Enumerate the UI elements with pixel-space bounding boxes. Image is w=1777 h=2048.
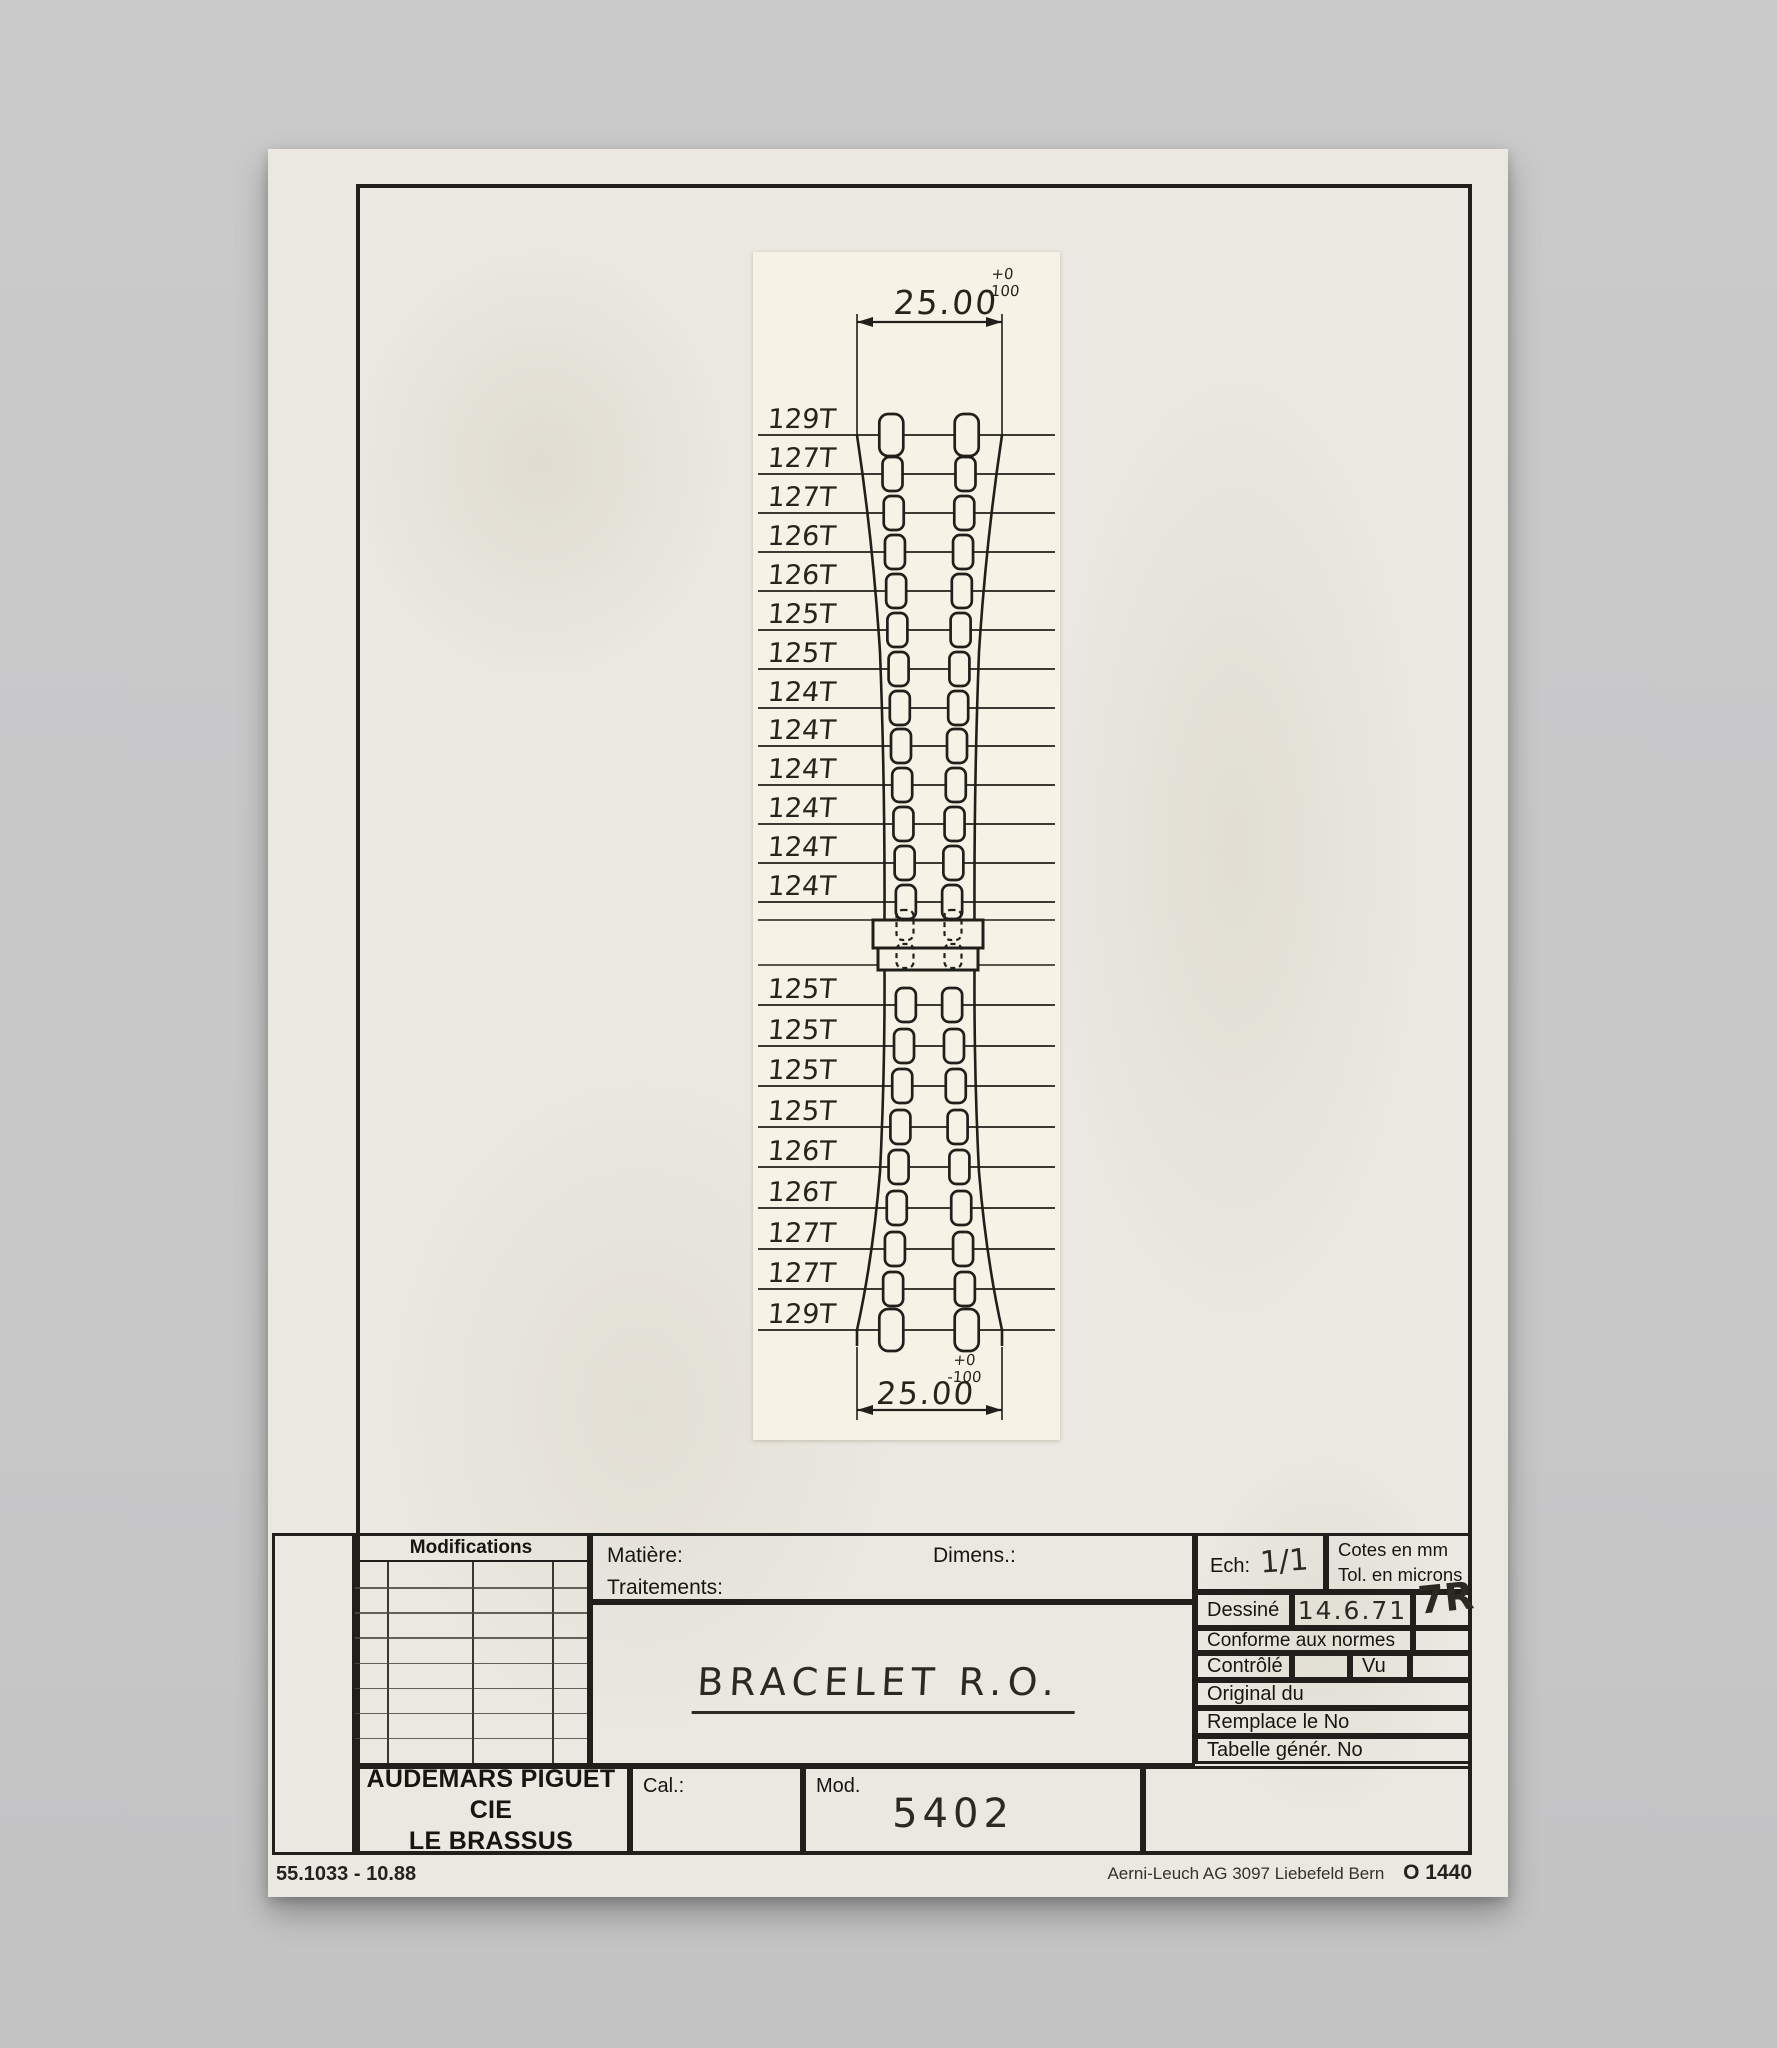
printer-code: O 1440: [1403, 1861, 1472, 1884]
ech-label: Ech:: [1210, 1555, 1250, 1578]
bracelet-link: [953, 535, 973, 569]
remplace-cell: Remplace le No: [1195, 1708, 1472, 1736]
conforme-blank-cell: [1413, 1628, 1472, 1653]
link-row-label: 125T: [766, 638, 837, 669]
link-row-label: 126T: [766, 521, 837, 552]
vu-blank-cell: [1410, 1653, 1472, 1680]
bracelet-link: [943, 846, 963, 880]
modifications-table: Modifications: [352, 1533, 590, 1766]
link-row-label: 124T: [766, 754, 837, 785]
link-row-label: 126T: [766, 1177, 837, 1208]
link-row-label: 124T: [766, 793, 837, 824]
link-row-label: 125T: [766, 974, 837, 1005]
printer-credit: Aerni-Leuch AG 3097 Liebefeld Bern O 144…: [1107, 1861, 1472, 1885]
bottom-tolerance-minus: -100: [947, 1368, 983, 1386]
bracelet-link: [884, 496, 904, 530]
link-row-label: 127T: [766, 1258, 837, 1289]
bracelet-link: [949, 1150, 969, 1184]
bracelet-link: [879, 414, 903, 456]
link-row-label: 125T: [766, 1015, 837, 1046]
bracelet-link: [883, 1272, 903, 1306]
modifications-header: Modifications: [355, 1536, 587, 1562]
link-row-label: 124T: [766, 871, 837, 902]
bracelet-link: [890, 1110, 910, 1144]
link-row-label: 127T: [766, 443, 837, 474]
top-tolerance-plus: +0: [991, 265, 1015, 283]
designation-cell: BRACELET R.O.: [590, 1602, 1195, 1766]
bracelet-link: [891, 729, 911, 763]
bracelet-link: [890, 691, 910, 725]
dessine-signature-cell: 7R: [1413, 1592, 1472, 1628]
bracelet-link: [951, 613, 971, 647]
scan-background: 25.00+0-100129T127T127T126T126T125T125T1…: [0, 0, 1777, 2048]
bracelet-link: [946, 768, 966, 802]
caliber-cell: Cal.:: [630, 1766, 803, 1855]
cotes-line1: Cotes en mm: [1338, 1538, 1469, 1562]
bracelet-link: [945, 807, 965, 841]
clasp-lower-plate: [878, 948, 978, 970]
dimension-arrow: [857, 317, 873, 327]
bracelet-link: [944, 1029, 964, 1063]
bracelet-drawing: 25.00+0-100129T127T127T126T126T125T125T1…: [753, 252, 1060, 1440]
bracelet-link: [948, 691, 968, 725]
top-tolerance-minus: -100: [985, 282, 1021, 300]
pasted-drawing-strip: 25.00+0-100129T127T127T126T126T125T125T1…: [753, 252, 1060, 1440]
modifications-grid-row-line: [355, 1663, 587, 1665]
drawing-sheet: 25.00+0-100129T127T127T126T126T125T125T1…: [268, 149, 1508, 1897]
link-row-label: 126T: [766, 560, 837, 591]
bracelet-link: [895, 846, 915, 880]
dessine-label: Dessiné: [1207, 1599, 1279, 1622]
original-label: Original du: [1207, 1683, 1304, 1706]
bracelet-outline-left: [857, 435, 885, 920]
bracelet-link: [889, 1150, 909, 1184]
link-row-label: 125T: [766, 1055, 837, 1086]
bottom-right-empty-cell: [1143, 1766, 1472, 1855]
modifications-grid-row-line: [355, 1612, 587, 1614]
modifications-grid-row-line: [355, 1637, 587, 1639]
dessine-date: 14.6.71: [1298, 1596, 1407, 1625]
printer-name: Aerni-Leuch AG 3097 Liebefeld Bern: [1107, 1864, 1384, 1883]
bracelet-link: [947, 729, 967, 763]
bracelet-link: [886, 574, 906, 608]
bracelet-outline-right: [974, 435, 1002, 920]
company-cell: AUDEMARS PIGUET CIE LE BRASSUS: [352, 1766, 630, 1855]
dimension-arrow: [986, 1405, 1002, 1415]
bracelet-link: [889, 652, 909, 686]
vu-cell: Vu: [1350, 1653, 1410, 1680]
link-row-label: 125T: [766, 599, 837, 630]
bottom-tolerance-plus: +0: [953, 1351, 977, 1369]
scale-cell: Ech: 1/1: [1195, 1533, 1326, 1592]
bracelet-link: [954, 496, 974, 530]
clasp-upper-plate: [873, 920, 983, 948]
original-du-cell: Original du: [1195, 1680, 1472, 1708]
cal-label: Cal.:: [643, 1775, 684, 1798]
dessine-cell: Dessiné: [1195, 1592, 1292, 1628]
bracelet-link: [948, 1110, 968, 1144]
bracelet-link: [951, 1191, 971, 1225]
link-row-label: 124T: [766, 832, 837, 863]
material-cell: Matière: Dimens.: Traitements:: [590, 1533, 1195, 1602]
controle-blank-cell: [1292, 1653, 1350, 1680]
form-reference: 55.1033 - 10.88: [276, 1863, 416, 1886]
bracelet-link: [942, 988, 962, 1022]
tabelle-label: Tabelle génér. No: [1207, 1739, 1363, 1762]
link-row-label: 124T: [766, 677, 837, 708]
ech-value: 1/1: [1259, 1542, 1310, 1580]
controle-cell: Contrôlé: [1195, 1653, 1292, 1680]
bracelet-link: [879, 1309, 903, 1351]
bracelet-link: [955, 414, 979, 456]
link-row-label: 127T: [766, 1218, 837, 1249]
bracelet-link: [887, 613, 907, 647]
remplace-label: Remplace le No: [1207, 1711, 1349, 1734]
bracelet-link: [885, 535, 905, 569]
conforme-cell: Conforme aux normes: [1195, 1628, 1413, 1653]
top-dimension-text: 25.00: [892, 283, 1000, 322]
link-row-label: 126T: [766, 1136, 837, 1167]
link-row-label: 129T: [766, 1299, 837, 1330]
bracelet-link: [883, 457, 903, 491]
company-location: LE BRASSUS: [409, 1826, 573, 1857]
traitements-label: Traitements:: [607, 1576, 723, 1600]
bracelet-link: [955, 1309, 979, 1351]
link-row-label: 125T: [766, 1096, 837, 1127]
dimension-arrow: [857, 1405, 873, 1415]
controle-label: Contrôlé: [1207, 1655, 1283, 1678]
modifications-grid-row-line: [355, 1688, 587, 1690]
bracelet-link: [893, 807, 913, 841]
link-row-label: 129T: [766, 404, 837, 435]
bracelet-link: [955, 457, 975, 491]
bracelet-link: [949, 652, 969, 686]
link-row-label: 127T: [766, 482, 837, 513]
dimens-label: Dimens.:: [933, 1544, 1016, 1568]
bracelet-link: [894, 1029, 914, 1063]
company-name: AUDEMARS PIGUET CIE: [355, 1764, 627, 1827]
model-cell: Mod. 5402: [803, 1766, 1143, 1855]
titleblock-left-empty-cell: [272, 1533, 356, 1855]
modifications-grid-row-line: [355, 1713, 587, 1715]
bracelet-link: [885, 1232, 905, 1266]
dessine-signature: 7R: [1416, 1576, 1475, 1620]
dessine-date-cell: 14.6.71: [1292, 1592, 1413, 1628]
bracelet-link: [952, 574, 972, 608]
tabelle-cell: Tabelle génér. No: [1195, 1736, 1472, 1764]
vu-label: Vu: [1362, 1655, 1386, 1678]
modifications-grid-row-line: [355, 1738, 587, 1740]
bracelet-link: [953, 1232, 973, 1266]
modifications-grid: [355, 1562, 587, 1763]
bracelet-link: [892, 1069, 912, 1103]
conforme-label: Conforme aux normes: [1207, 1630, 1395, 1652]
designation-title: BRACELET R.O.: [692, 1660, 1078, 1714]
bracelet-link: [896, 988, 916, 1022]
bracelet-link: [955, 1272, 975, 1306]
matiere-label: Matière:: [607, 1544, 683, 1568]
link-row-label: 124T: [766, 715, 837, 746]
bracelet-link: [892, 768, 912, 802]
modifications-grid-row-line: [355, 1587, 587, 1589]
bracelet-link: [887, 1191, 907, 1225]
mod-value: 5402: [806, 1791, 1100, 1837]
bracelet-link: [946, 1069, 966, 1103]
